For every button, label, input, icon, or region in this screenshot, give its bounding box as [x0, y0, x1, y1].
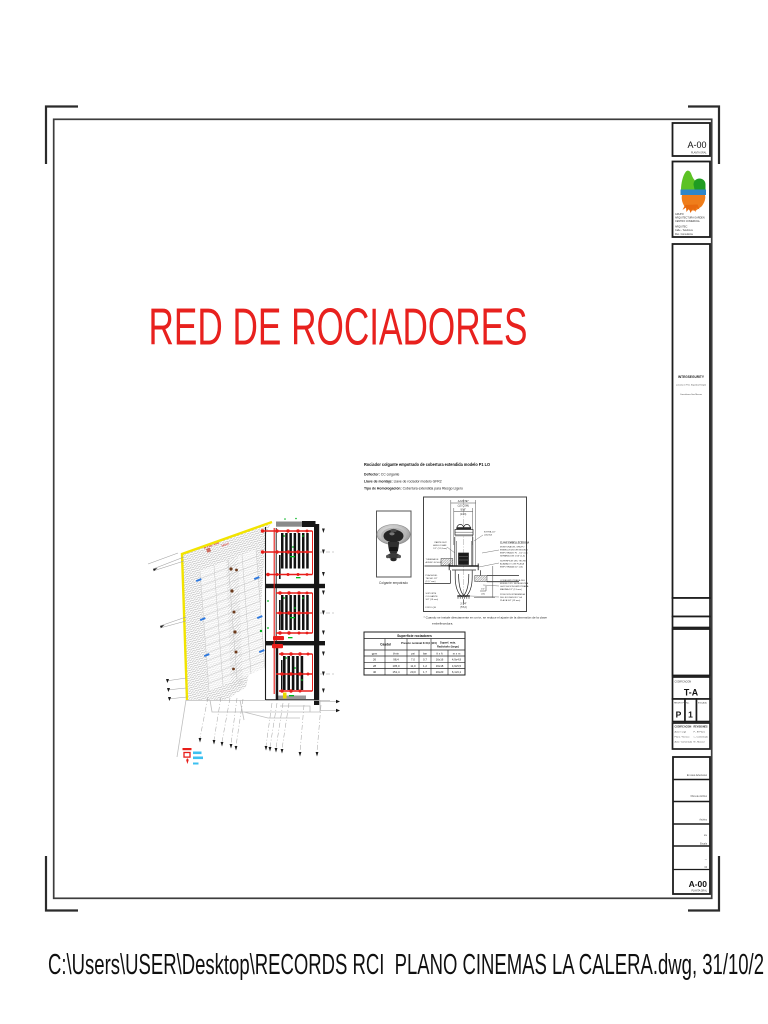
svg-text:---: --- [705, 860, 708, 862]
svg-text:16x16: 16x16 [436, 658, 444, 662]
svg-text:ESCALA: ESCALA [698, 702, 707, 705]
svg-text:COPA EMPOTRADA DEL: COPA EMPOTRADA DEL [500, 579, 526, 582]
svg-text:Radio/año (largo): Radio/año (largo) [437, 645, 459, 649]
svg-text:SUPERFICIE DEL TECHO: SUPERFICIE DEL TECHO [500, 561, 526, 563]
svg-text:Autor / segti: Autor / segti [675, 731, 687, 734]
svg-text:INTEGSEGURITY: INTEGSEGURITY [678, 375, 705, 379]
svg-text:l/min: l/min [393, 651, 399, 655]
svg-text:embellecedora.: embellecedora. [432, 622, 453, 626]
svg-text:* Cuando se instale directamen: * Cuando se instale directamente en un t… [424, 616, 548, 620]
svg-text:ACABADO CON PLACA: ACABADO CON PLACA [500, 563, 524, 566]
svg-text:9/16": 9/16" [460, 509, 466, 512]
svg-text:F1FX LQB: F1FX LQB [426, 607, 437, 609]
svg-text:EMPOTRADO F1 - 1/2" (13): EMPOTRADO F1 - 1/2" (13) [500, 552, 528, 555]
svg-text:Presión nominal K=8,0 (115): Presión nominal K=8,0 (115) [401, 641, 437, 645]
svg-text:No.: No. [686, 703, 690, 705]
svg-text:(12,7 mm): (12,7 mm) [426, 581, 436, 583]
svg-text:psi: psi [411, 651, 415, 655]
svg-text:EMBELLECEDOR MODELO: EMBELLECEDOR MODELO [500, 550, 528, 552]
svg-text:DEL ROCIADOR Y LA: DEL ROCIADOR Y LA [500, 596, 522, 599]
svg-text:26: 26 [373, 658, 377, 662]
svg-text:ft x ft: ft x ft [436, 651, 442, 655]
svg-text:6,1x6,1: 6,1x6,1 [452, 670, 462, 674]
svg-text:m x m: m x m [453, 651, 461, 655]
svg-text:gpm: gpm [372, 651, 378, 655]
svg-text:C:\Users\USER\Desktop\RECORDS: C:\Users\USER\Desktop\RECORDS RCI PLANO … [48, 949, 764, 981]
svg-text:28: 28 [373, 664, 377, 668]
svg-text:Superf. máx.: Superf. máx. [440, 641, 456, 645]
svg-text:HECHO P: HECHO P [674, 703, 685, 705]
svg-text:Archivo: Archivo [699, 819, 707, 822]
svg-text:P: P [676, 710, 682, 720]
svg-text:Consultores San Marcos: Consultores San Marcos [680, 393, 703, 396]
svg-text:1: 1 [688, 710, 693, 720]
svg-text:Deflector: CC colgante: Deflector: CC colgante [364, 473, 400, 477]
svg-text:(1/2 COM): (1/2 COM) [458, 505, 469, 508]
svg-text:AJUSTE*: AJUSTE* [458, 499, 469, 503]
svg-text:T-A: T-A [684, 688, 699, 698]
svg-text:asesoria en Prev. Seguridad In: asesoria en Prev. Seguridad Integral [676, 384, 706, 387]
svg-text:ACERO SCH-40: ACERO SCH-40 [426, 561, 443, 564]
svg-text:A-00: A-00 [687, 140, 706, 150]
svg-text:(14,3): (14,3) [460, 513, 466, 516]
svg-text:M - Marcial: M - Marcial [694, 741, 705, 744]
svg-text:20,0: 20,0 [410, 670, 416, 674]
svg-text:Caudal: Caudal [380, 643, 391, 647]
svg-text:(13) B-B: (13) B-B [484, 535, 493, 537]
svg-text:COLGANTE: COLGANTE [426, 595, 439, 598]
svg-text:Llave de montaje: Llave de roc: Llave de montaje: Llave de rociador mode… [364, 480, 442, 484]
svg-text:PLANTA GRAL: PLANTA GRAL [691, 890, 707, 893]
svg-text:PLACA DEL: PLACA DEL [426, 574, 439, 577]
svg-text:PARTE SUP.: PARTE SUP. [434, 541, 447, 544]
svg-text:EMPOTRADA 1/2" (13): EMPOTRADA 1/2" (13) [500, 566, 523, 569]
svg-text:TUBERIA DE: TUBERIA DE [426, 558, 440, 561]
svg-text:0,7: 0,7 [423, 658, 427, 662]
svg-text:Colgante empotrado: Colgante empotrado [379, 581, 408, 585]
svg-text:4,9x4,9: 4,9x4,9 [452, 658, 462, 662]
svg-text:EXTRA 1/2": EXTRA 1/2" [484, 531, 496, 534]
svg-text:SOPORTE: SOPORTE [426, 593, 437, 595]
svg-text:CLAVE EMBELLECEDORA: CLAVE EMBELLECEDORA [500, 542, 530, 545]
svg-text:Escala: Escala [700, 844, 708, 846]
svg-text:MODELO F1. SE MUESTRA: MODELO F1. SE MUESTRA [500, 582, 529, 585]
svg-text:Calle - Telefonos: Calle - Telefonos [675, 229, 694, 232]
svg-text:(13): (13) [481, 594, 485, 596]
svg-text:Superficie rociadores: Superficie rociadores [397, 634, 432, 638]
svg-text:CENTRO COMERCIAL: CENTRO COMERCIAL [675, 220, 701, 223]
svg-text:SEPARACION 1/16" (1,6): SEPARACION 1/16" (1,6) [500, 555, 525, 558]
svg-text:CODIFICACION: CODIFICACION [675, 726, 692, 729]
svg-text:REVISIONES: REVISIONES [694, 727, 709, 729]
svg-text:s - Comentado: s - Comentado [694, 736, 709, 739]
svg-text:Ruc. Consultoria: Ruc. Consultoria [675, 233, 693, 236]
svg-text:POSICION INTERMEDIA: POSICION INTERMEDIA [500, 593, 525, 596]
svg-text:A-00: A-00 [689, 879, 708, 889]
svg-text:105,0: 105,0 [393, 664, 400, 668]
svg-text:11,0: 11,0 [410, 664, 416, 668]
svg-text:3/4" (19 mm): 3/4" (19 mm) [426, 599, 439, 601]
svg-text:98,4: 98,4 [393, 658, 399, 662]
svg-text:PLACA 3/4" (19 mm): PLACA 3/4" (19 mm) [500, 599, 520, 602]
svg-text:151,4: 151,4 [393, 670, 400, 674]
svg-text:PLANTA GRAL: PLANTA GRAL [691, 152, 707, 155]
svg-text:Plano / Tecnico: Plano / Tecnico [675, 737, 691, 739]
svg-text:(57,2): (57,2) [460, 606, 466, 609]
svg-text:ANILLO MAX.: ANILLO MAX. [433, 544, 447, 547]
svg-text:bar: bar [423, 651, 427, 655]
svg-text:TECHO 1/2": TECHO 1/2" [426, 578, 438, 580]
svg-text:16x18: 16x18 [436, 664, 444, 668]
svg-text:RED DE ROCIADORES: RED DE ROCIADORES [149, 298, 528, 356]
svg-text:1/2" (12,7mm): 1/2" (12,7mm) [433, 548, 447, 550]
svg-text:4,9x5,5: 4,9x5,5 [452, 664, 462, 668]
svg-text:Auto / Comentado: Auto / Comentado [675, 741, 693, 744]
svg-text:Tipo de Homologación: Cobertur: Tipo de Homologación: Cobertura extendid… [364, 487, 463, 491]
svg-text:En caso defectuoso: En caso defectuoso [687, 774, 708, 777]
svg-text:MONTURA DEL GRUPO: MONTURA DEL GRUPO [500, 546, 525, 549]
svg-text:1,2: 1,2 [423, 664, 427, 668]
svg-text:7,0: 7,0 [411, 658, 415, 662]
svg-text:20x20: 20x20 [436, 670, 444, 674]
svg-text:MAXIMA 1/2" (13 mm): MAXIMA 1/2" (13 mm) [500, 588, 522, 591]
svg-text:Rociador colgante empotrado de: Rociador colgante empotrado de cobertura… [364, 462, 490, 467]
svg-text:LA POSICION EMPOTRADA: LA POSICION EMPOTRADA [500, 585, 529, 588]
svg-text:Obra de Archivo: Obra de Archivo [691, 795, 708, 798]
svg-text:CODIFICACION: CODIFICACION [675, 681, 692, 684]
svg-text:P - El Plano: P - El Plano [694, 732, 706, 734]
svg-text:1/2": 1/2" [481, 589, 485, 591]
svg-text:40: 40 [373, 670, 377, 674]
svg-text:1,7: 1,7 [423, 670, 427, 674]
